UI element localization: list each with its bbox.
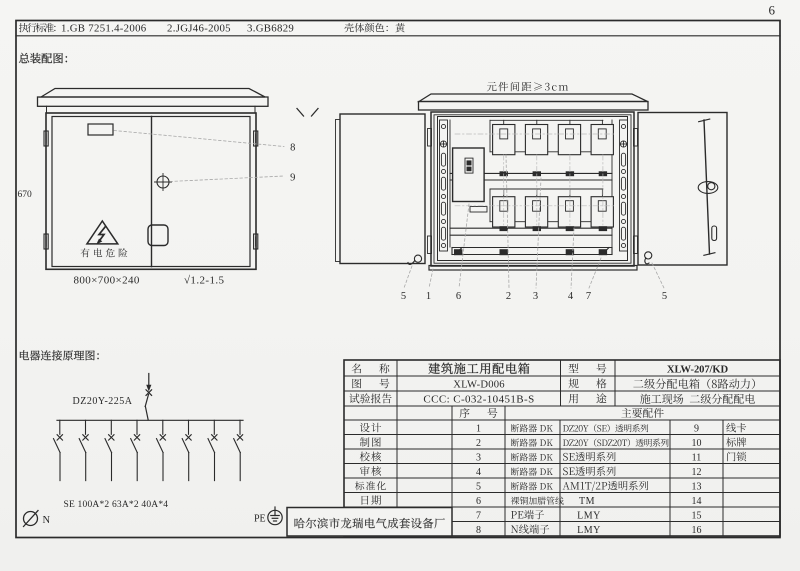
svg-text:5: 5 — [476, 482, 481, 493]
svg-text:11: 11 — [692, 453, 702, 464]
svg-text:670: 670 — [18, 190, 33, 200]
svg-text:XLW-207/KD: XLW-207/KD — [667, 365, 729, 376]
svg-text:XLW-D006: XLW-D006 — [453, 380, 504, 391]
svg-text:3: 3 — [476, 453, 481, 464]
svg-text:2: 2 — [506, 291, 511, 302]
svg-text:12: 12 — [692, 467, 702, 478]
svg-text:7: 7 — [586, 291, 591, 302]
svg-text:SE 100A*2 63A*2 40A*4: SE 100A*2 63A*2 40A*4 — [64, 500, 169, 510]
svg-text:9: 9 — [290, 173, 295, 184]
svg-text:2.JGJ46-2005: 2.JGJ46-2005 — [167, 23, 231, 35]
svg-text:LMY: LMY — [577, 525, 601, 536]
svg-text:DZ20Y-225A: DZ20Y-225A — [73, 396, 133, 407]
svg-text:7: 7 — [476, 511, 481, 522]
svg-text:8: 8 — [290, 143, 295, 154]
svg-text:6: 6 — [476, 496, 481, 507]
svg-text:15: 15 — [692, 511, 702, 522]
svg-text:9: 9 — [694, 424, 699, 435]
svg-text:2: 2 — [476, 438, 481, 449]
svg-text:LMY: LMY — [577, 511, 601, 522]
svg-text:4: 4 — [568, 291, 574, 302]
svg-text:3: 3 — [533, 291, 538, 302]
svg-text:3.GB6829: 3.GB6829 — [247, 23, 294, 35]
svg-text:PE: PE — [254, 514, 266, 525]
svg-text:1: 1 — [426, 291, 431, 302]
svg-text:8: 8 — [476, 525, 481, 536]
svg-text:1: 1 — [476, 424, 481, 435]
svg-text:5: 5 — [401, 291, 406, 302]
svg-text:4: 4 — [476, 467, 481, 478]
svg-text:800×700×240: 800×700×240 — [74, 275, 140, 287]
svg-text:5: 5 — [662, 291, 667, 302]
svg-text:10: 10 — [692, 438, 702, 449]
svg-text:6: 6 — [769, 3, 776, 18]
svg-text:CCC: C-032-10451B-S: CCC: C-032-10451B-S — [423, 394, 534, 406]
svg-text:16: 16 — [692, 525, 702, 536]
svg-text:6: 6 — [456, 291, 461, 302]
svg-text:14: 14 — [692, 496, 702, 507]
svg-text:TM: TM — [579, 496, 595, 507]
svg-text:N: N — [43, 515, 51, 526]
svg-text:1.GB 7251.4-2006: 1.GB 7251.4-2006 — [61, 23, 147, 35]
svg-text:√1.2-1.5: √1.2-1.5 — [184, 275, 225, 287]
svg-text:13: 13 — [692, 482, 702, 493]
